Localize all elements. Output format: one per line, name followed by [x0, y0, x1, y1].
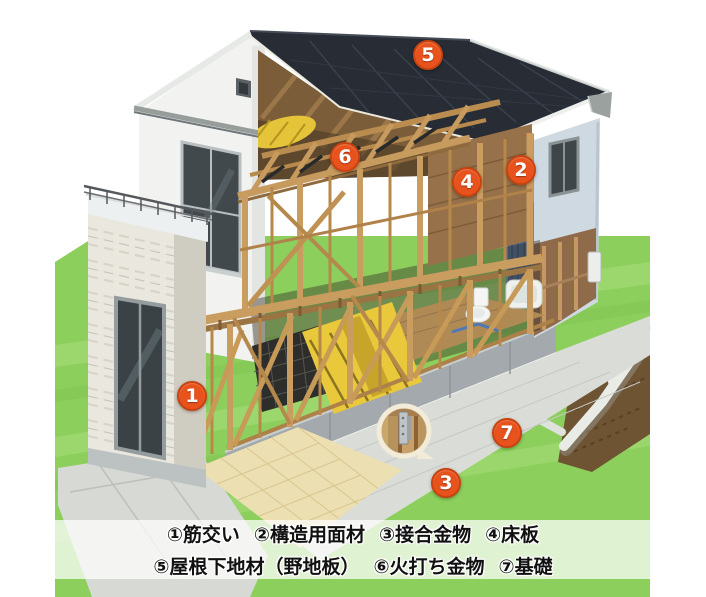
- house-construction-cutaway-figure: 1234567 ①筋交い②構造用面材③接合金物④床板⑤屋根下地材（野地板）⑥火打…: [0, 0, 706, 597]
- stone-clad-volume: [88, 212, 206, 488]
- callout-marker-3: 3: [431, 468, 461, 498]
- utility-box: [588, 252, 601, 282]
- callout-marker-7: 7: [492, 418, 522, 448]
- callout-marker-6: 6: [330, 142, 360, 172]
- callout-marker-2: 2: [506, 155, 536, 185]
- legend-rows: ①筋交い②構造用面材③接合金物④床板⑤屋根下地材（野地板）⑥火打ち金物⑦基礎: [153, 520, 552, 579]
- legend-item: ④床板: [485, 520, 539, 547]
- legend-row: ⑤屋根下地材（野地板）⑥火打ち金物⑦基礎: [153, 552, 552, 579]
- legend-item: ①筋交い: [167, 520, 240, 547]
- legend-item: ②構造用面材: [254, 520, 365, 547]
- legend-row: ①筋交い②構造用面材③接合金物④床板: [153, 520, 552, 547]
- stone-volume-window: [116, 298, 164, 458]
- metal-connector-plate: [399, 412, 408, 444]
- legend-band: ①筋交い②構造用面材③接合金物④床板⑤屋根下地材（野地板）⑥火打ち金物⑦基礎: [55, 520, 651, 579]
- legend-item: ⑥火打ち金物: [373, 552, 484, 579]
- legend-item: ⑤屋根下地材（野地板）: [153, 552, 359, 579]
- right-window: [550, 138, 578, 196]
- illustration: [0, 0, 706, 597]
- callout-marker-5: 5: [413, 40, 443, 70]
- right-eave-soffit: [588, 92, 612, 118]
- callout-marker-4: 4: [452, 167, 482, 197]
- callout-marker-1: 1: [177, 381, 207, 411]
- legend-item: ⑦基礎: [499, 552, 553, 579]
- legend-item: ③接合金物: [379, 520, 471, 547]
